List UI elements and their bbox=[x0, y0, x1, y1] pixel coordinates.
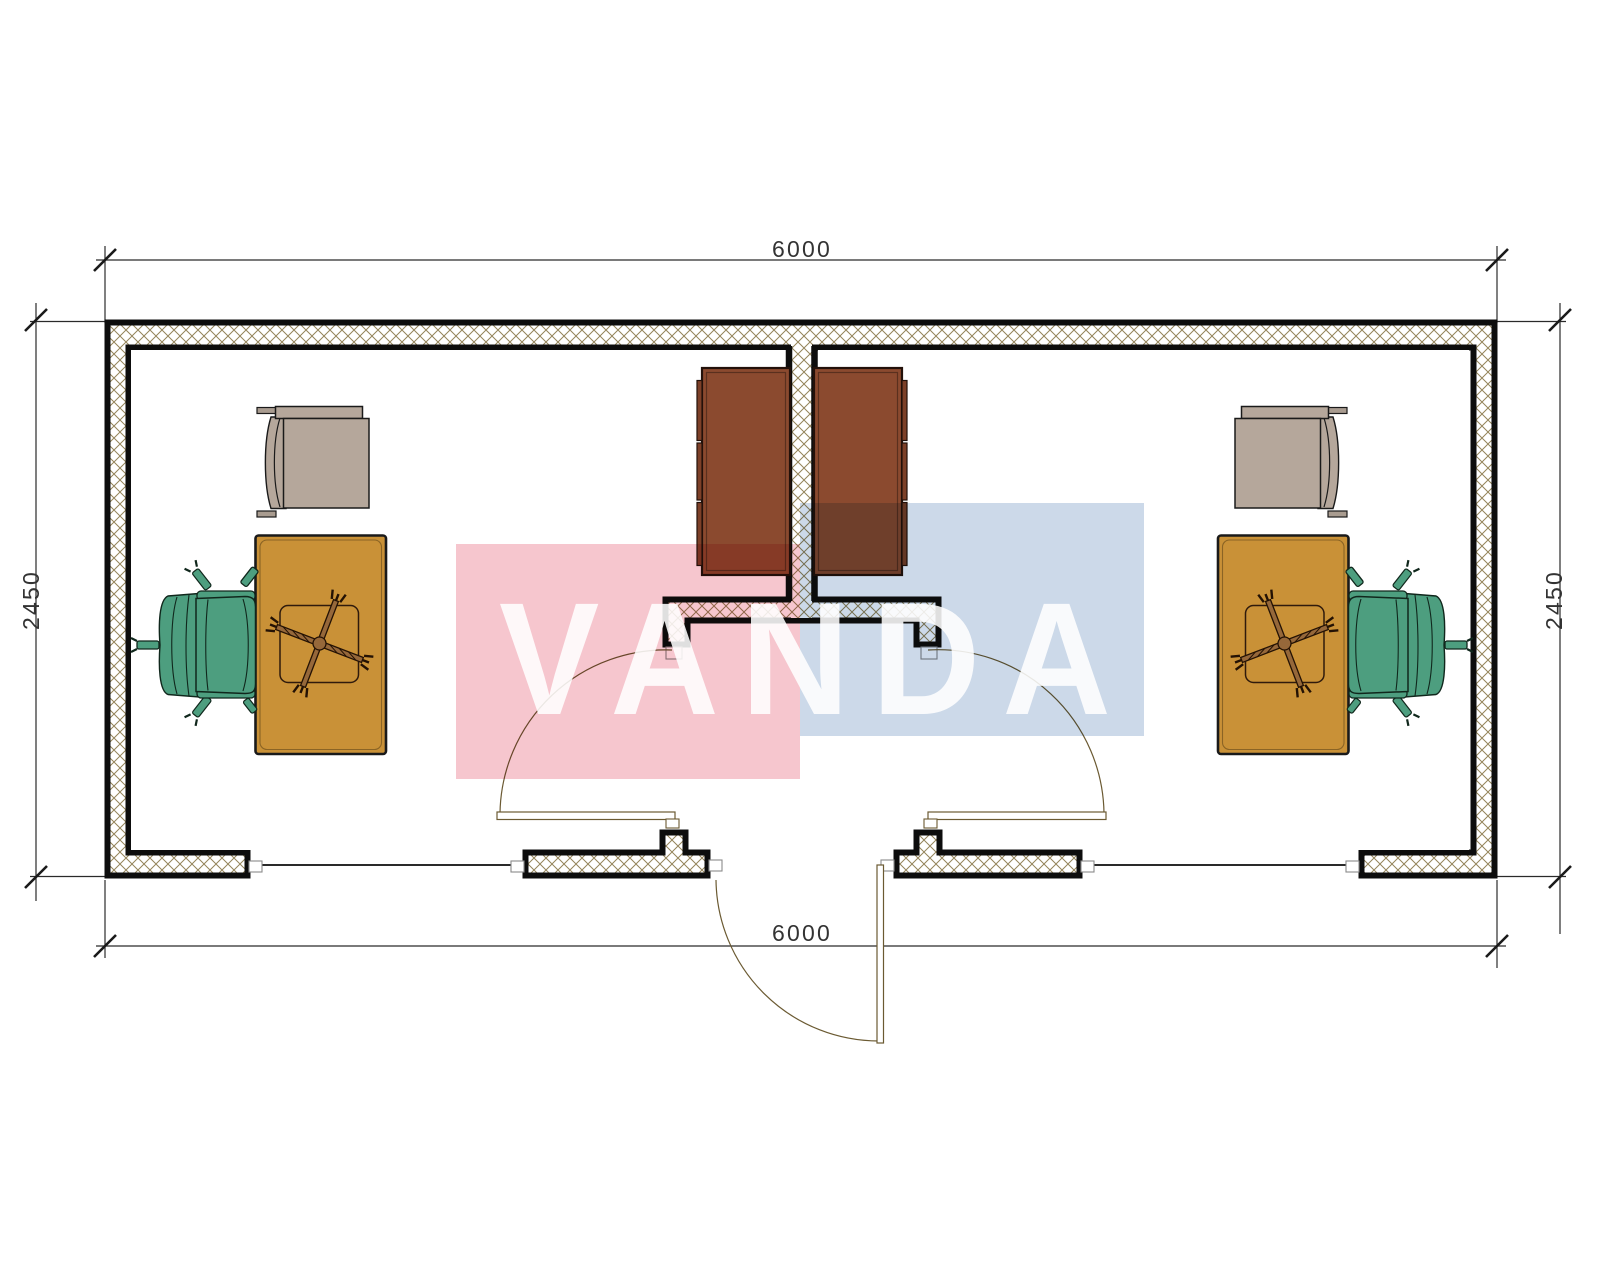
svg-text:6000: 6000 bbox=[772, 236, 832, 262]
svg-text:6000: 6000 bbox=[772, 920, 832, 946]
svg-text:2450: 2450 bbox=[1541, 570, 1567, 630]
svg-text:VANDA: VANDA bbox=[499, 569, 1133, 748]
svg-text:2450: 2450 bbox=[18, 570, 44, 630]
